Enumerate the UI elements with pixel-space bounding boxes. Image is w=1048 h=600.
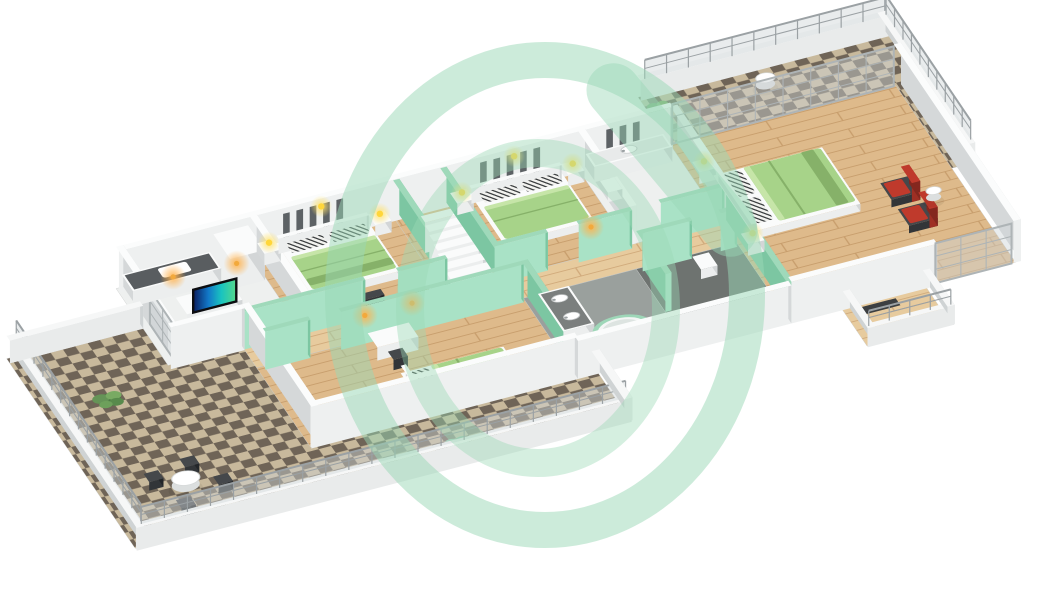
utility-downlight-1 (160, 264, 186, 290)
corridor-sconce (578, 214, 604, 240)
floor-plan-render (0, 0, 1048, 600)
utility-downlight-2 (224, 250, 250, 276)
floor-plan-page (0, 0, 1048, 600)
bedroom2-lamp-left (258, 232, 280, 254)
bedroom2-sconce (310, 195, 332, 217)
